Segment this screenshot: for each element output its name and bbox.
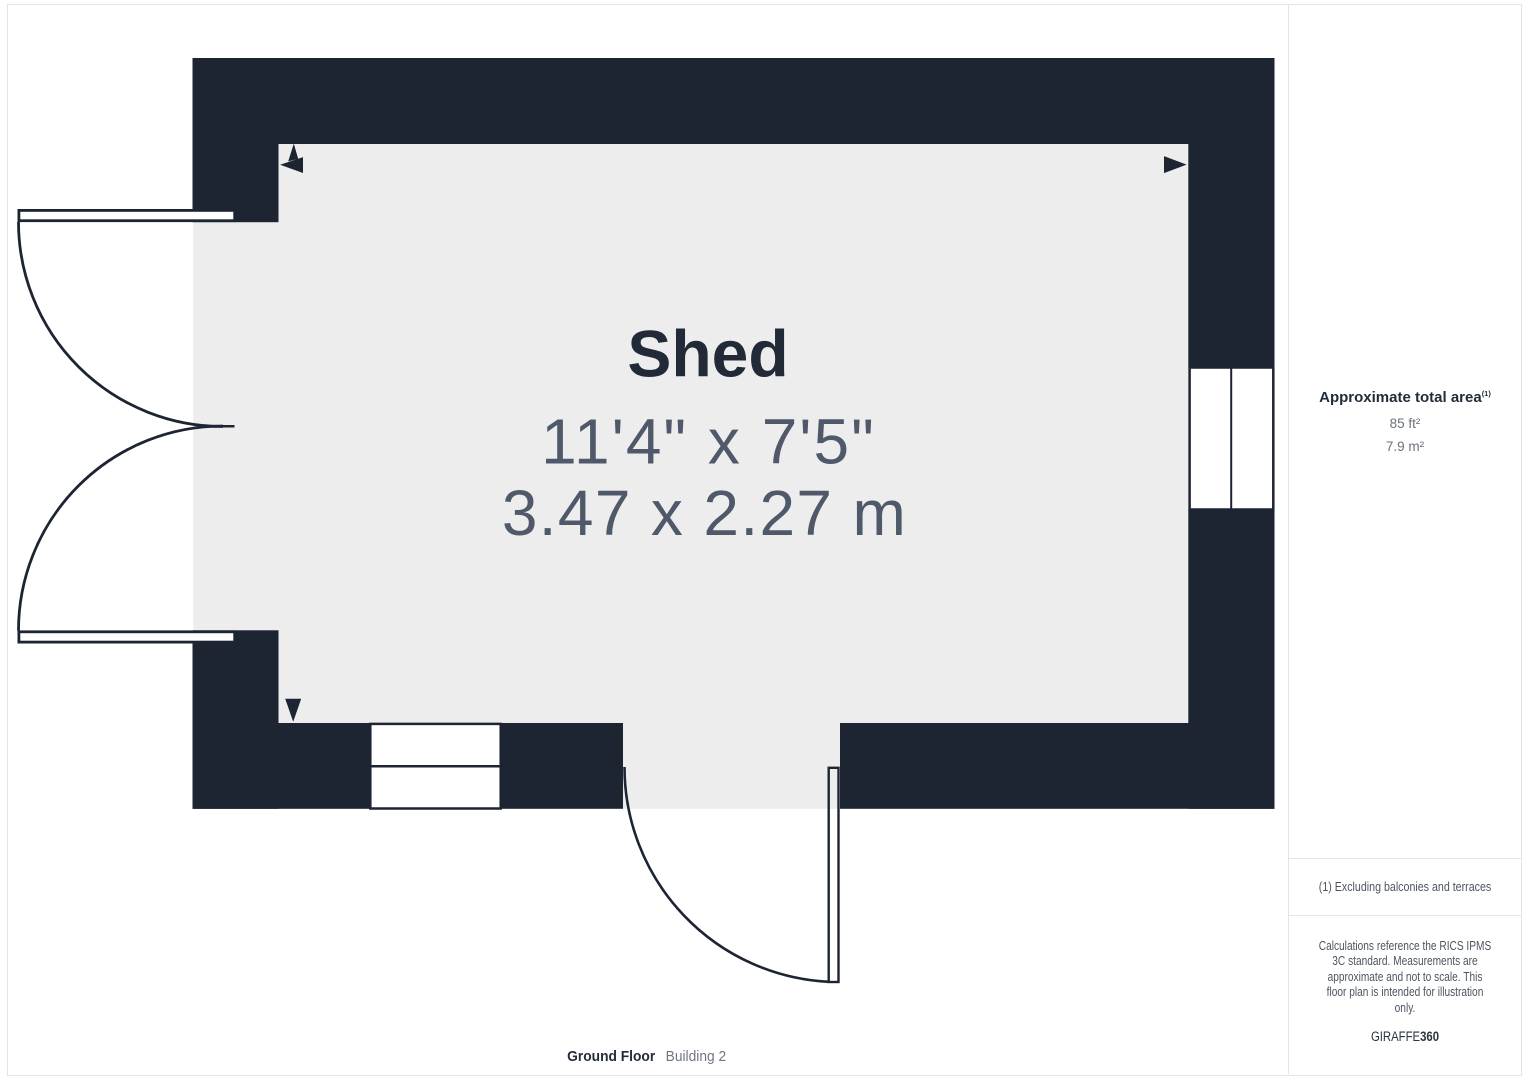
svg-text:Shed: Shed [627, 317, 788, 391]
svg-text:3.47 x 2.27 m: 3.47 x 2.27 m [502, 477, 907, 549]
svg-text:11'4" x 7'5": 11'4" x 7'5" [541, 405, 876, 477]
